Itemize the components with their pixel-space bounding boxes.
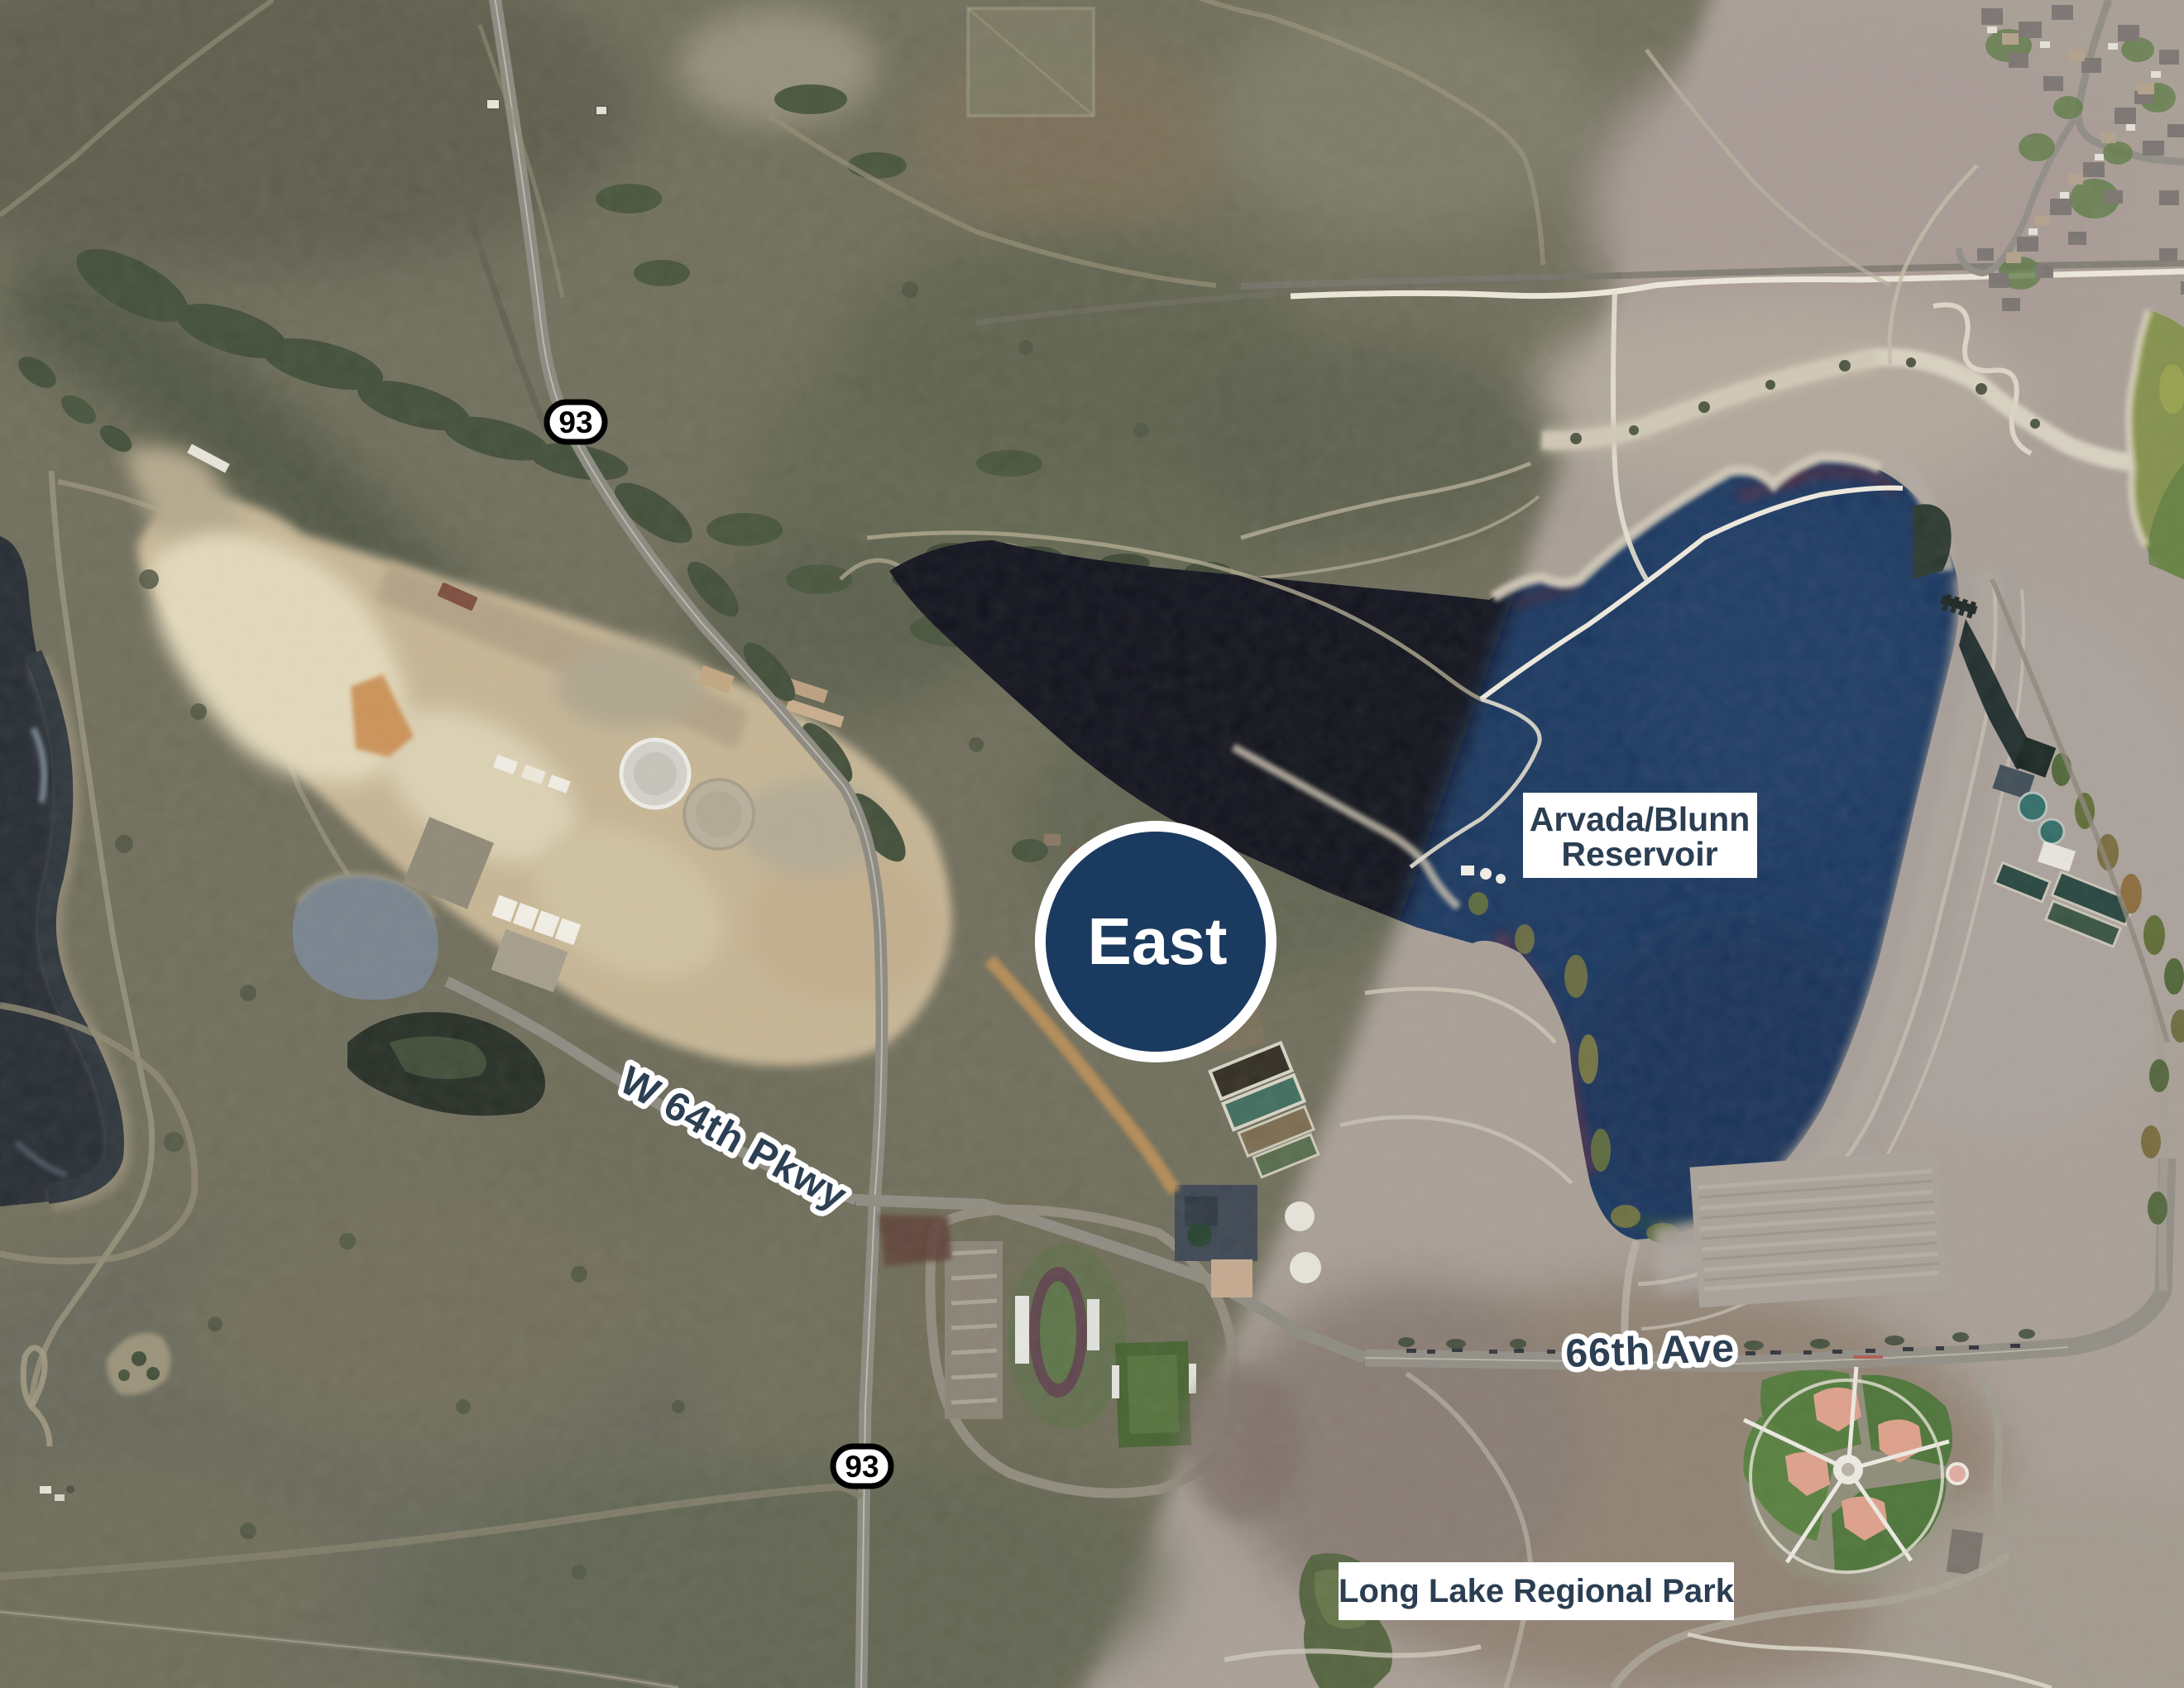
svg-text:93: 93 — [845, 1450, 879, 1484]
svg-text:66th Ave: 66th Ave — [1565, 1326, 1736, 1376]
svg-text:Long Lake Regional Park: Long Lake Regional Park — [1339, 1573, 1735, 1609]
svg-text:Reservoir: Reservoir — [1561, 835, 1717, 873]
svg-text:93: 93 — [558, 405, 592, 439]
svg-text:East: East — [1088, 904, 1228, 978]
svg-text:Arvada/Blunn: Arvada/Blunn — [1530, 800, 1751, 838]
